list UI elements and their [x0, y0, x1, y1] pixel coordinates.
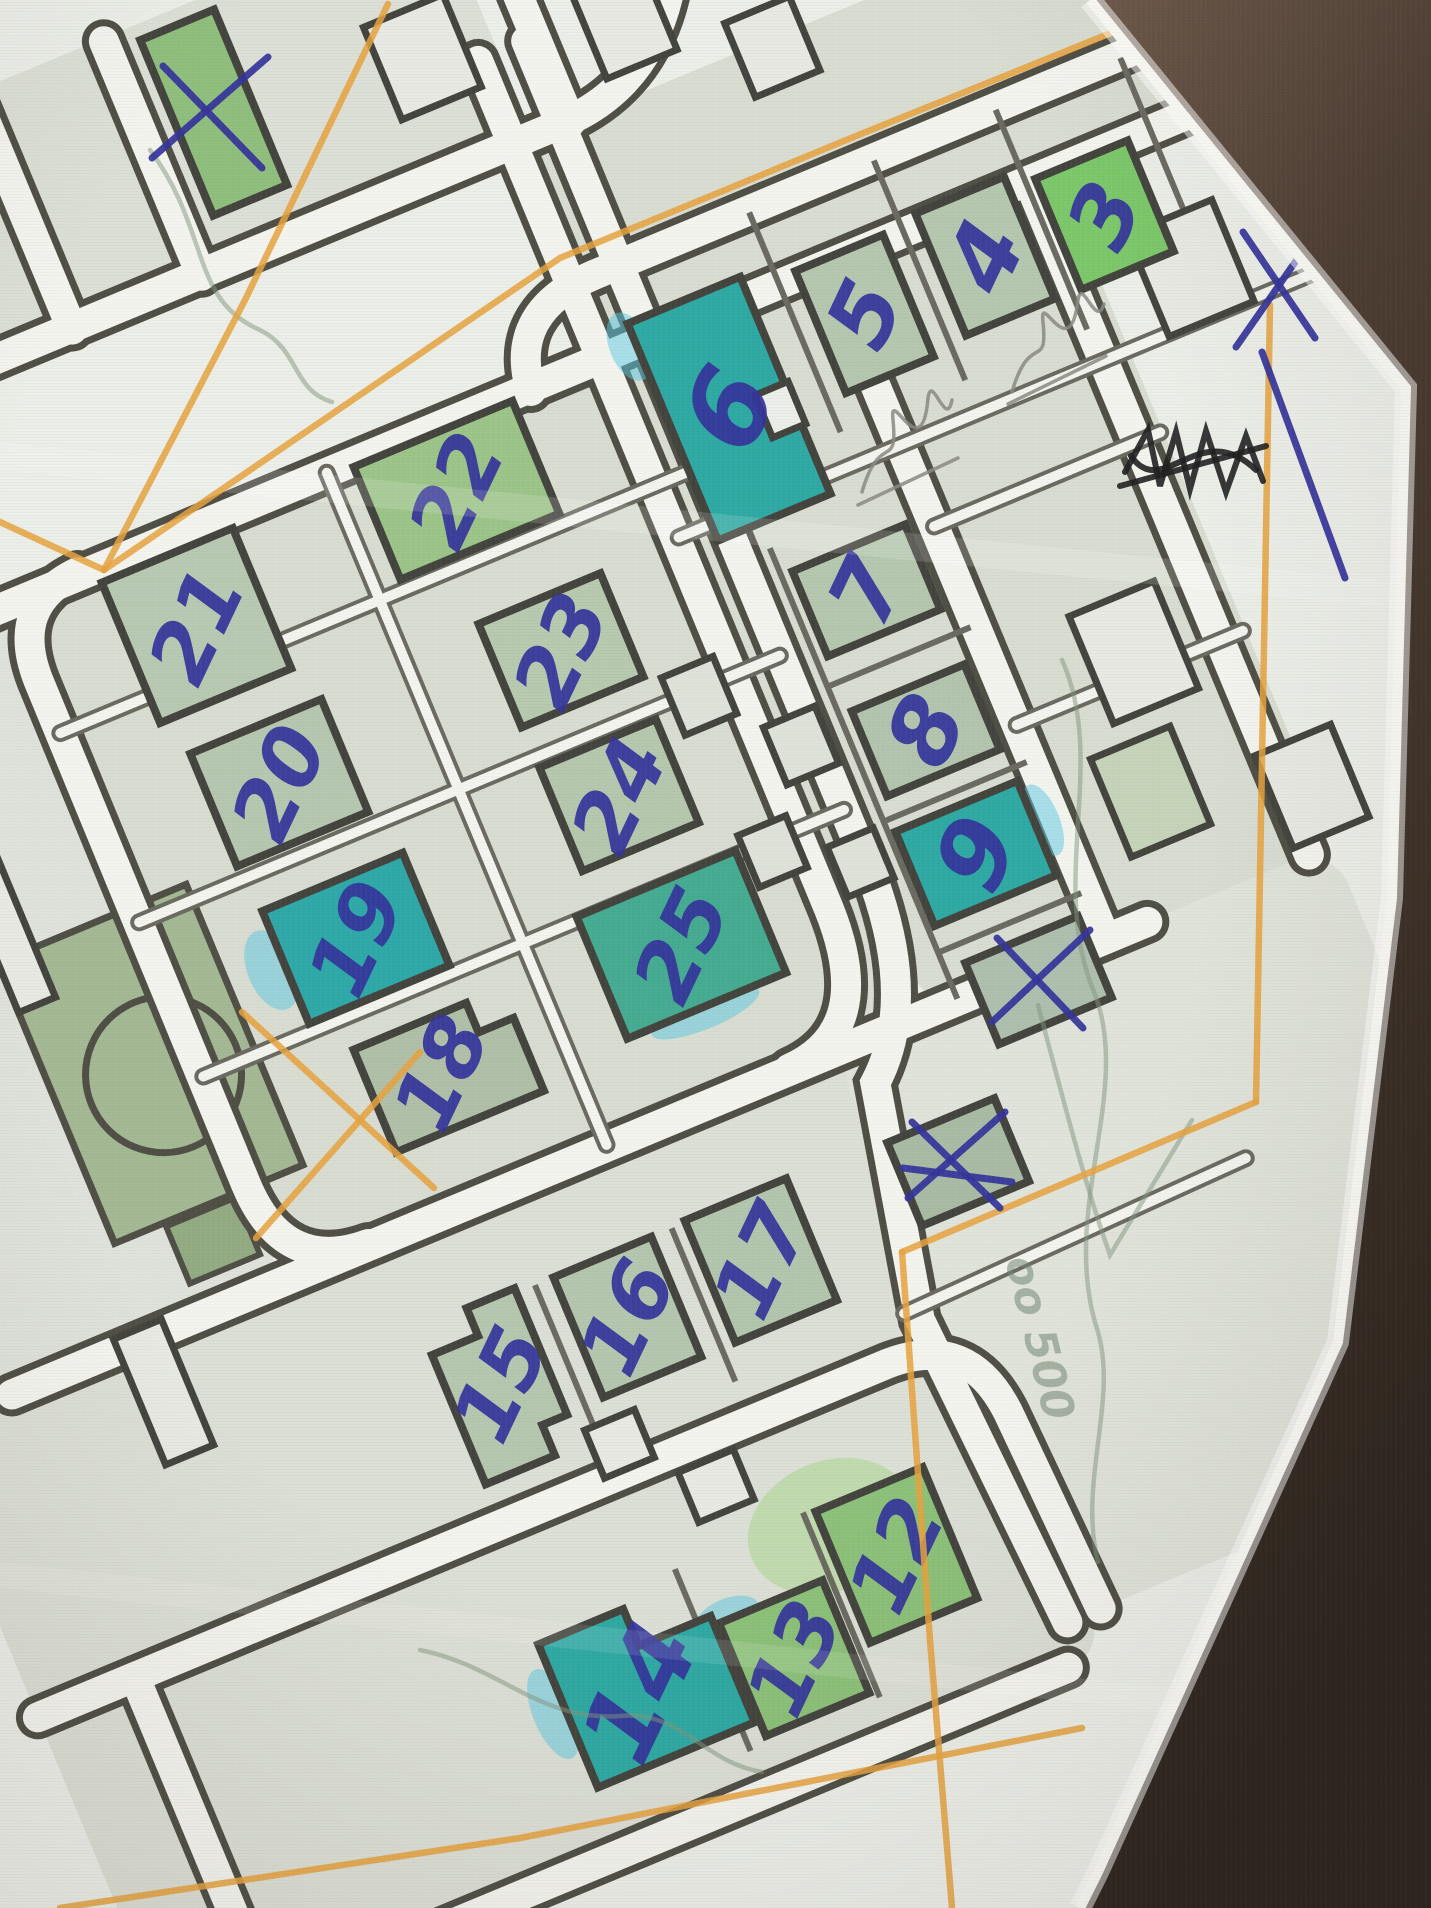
photo-of-annotated-map: 34567891213141516171819202122232425оо 50…: [0, 0, 1431, 1908]
map-photo-svg: 34567891213141516171819202122232425оо 50…: [0, 0, 1431, 1908]
